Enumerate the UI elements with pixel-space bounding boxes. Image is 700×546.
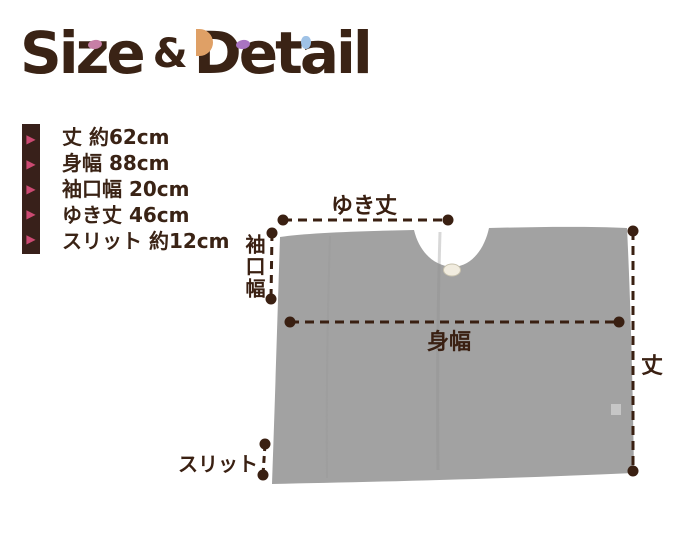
title-ampersand: & bbox=[143, 31, 194, 77]
page-title: Size&Detail bbox=[20, 18, 370, 88]
bullet-bar: ▶ ▶ ▶ ▶ ▶ bbox=[22, 124, 40, 254]
neck-button bbox=[444, 264, 461, 276]
spec-item-sodeguchi: 袖口幅 20cm bbox=[62, 176, 230, 202]
title-word-detail: Detail bbox=[194, 19, 370, 87]
triangle-bullet-icon: ▶ bbox=[26, 233, 35, 245]
label-mihaba: 身幅 bbox=[404, 324, 494, 356]
measurement-list: 丈 約62cm 身幅 88cm 袖口幅 20cm ゆき丈 46cm スリット 約… bbox=[62, 124, 230, 254]
care-tag bbox=[611, 404, 621, 415]
label-yukitake: ゆき丈 bbox=[312, 188, 416, 220]
spec-item-slit: スリット 約12cm bbox=[62, 228, 230, 254]
label-take: 丈 bbox=[641, 348, 663, 380]
triangle-bullet-icon: ▶ bbox=[26, 158, 35, 170]
triangle-bullet-icon: ▶ bbox=[26, 133, 35, 145]
triangle-bullet-icon: ▶ bbox=[26, 183, 35, 195]
triangle-bullet-icon: ▶ bbox=[26, 208, 35, 220]
title-word-size: Size bbox=[20, 19, 143, 87]
spec-item-mihaba: 身幅 88cm bbox=[62, 150, 230, 176]
spec-list: ▶ ▶ ▶ ▶ ▶ 丈 約62cm 身幅 88cm 袖口幅 20cm ゆき丈 4… bbox=[22, 124, 230, 254]
slit-measure-line bbox=[258, 439, 271, 481]
spec-item-take: 丈 約62cm bbox=[62, 124, 230, 150]
label-slit: スリット bbox=[178, 448, 252, 477]
label-sodeguchi-haba: 袖口幅 bbox=[240, 234, 269, 300]
title-accent-blue-dot bbox=[301, 36, 311, 49]
spec-item-yukitake: ゆき丈 46cm bbox=[62, 202, 230, 228]
